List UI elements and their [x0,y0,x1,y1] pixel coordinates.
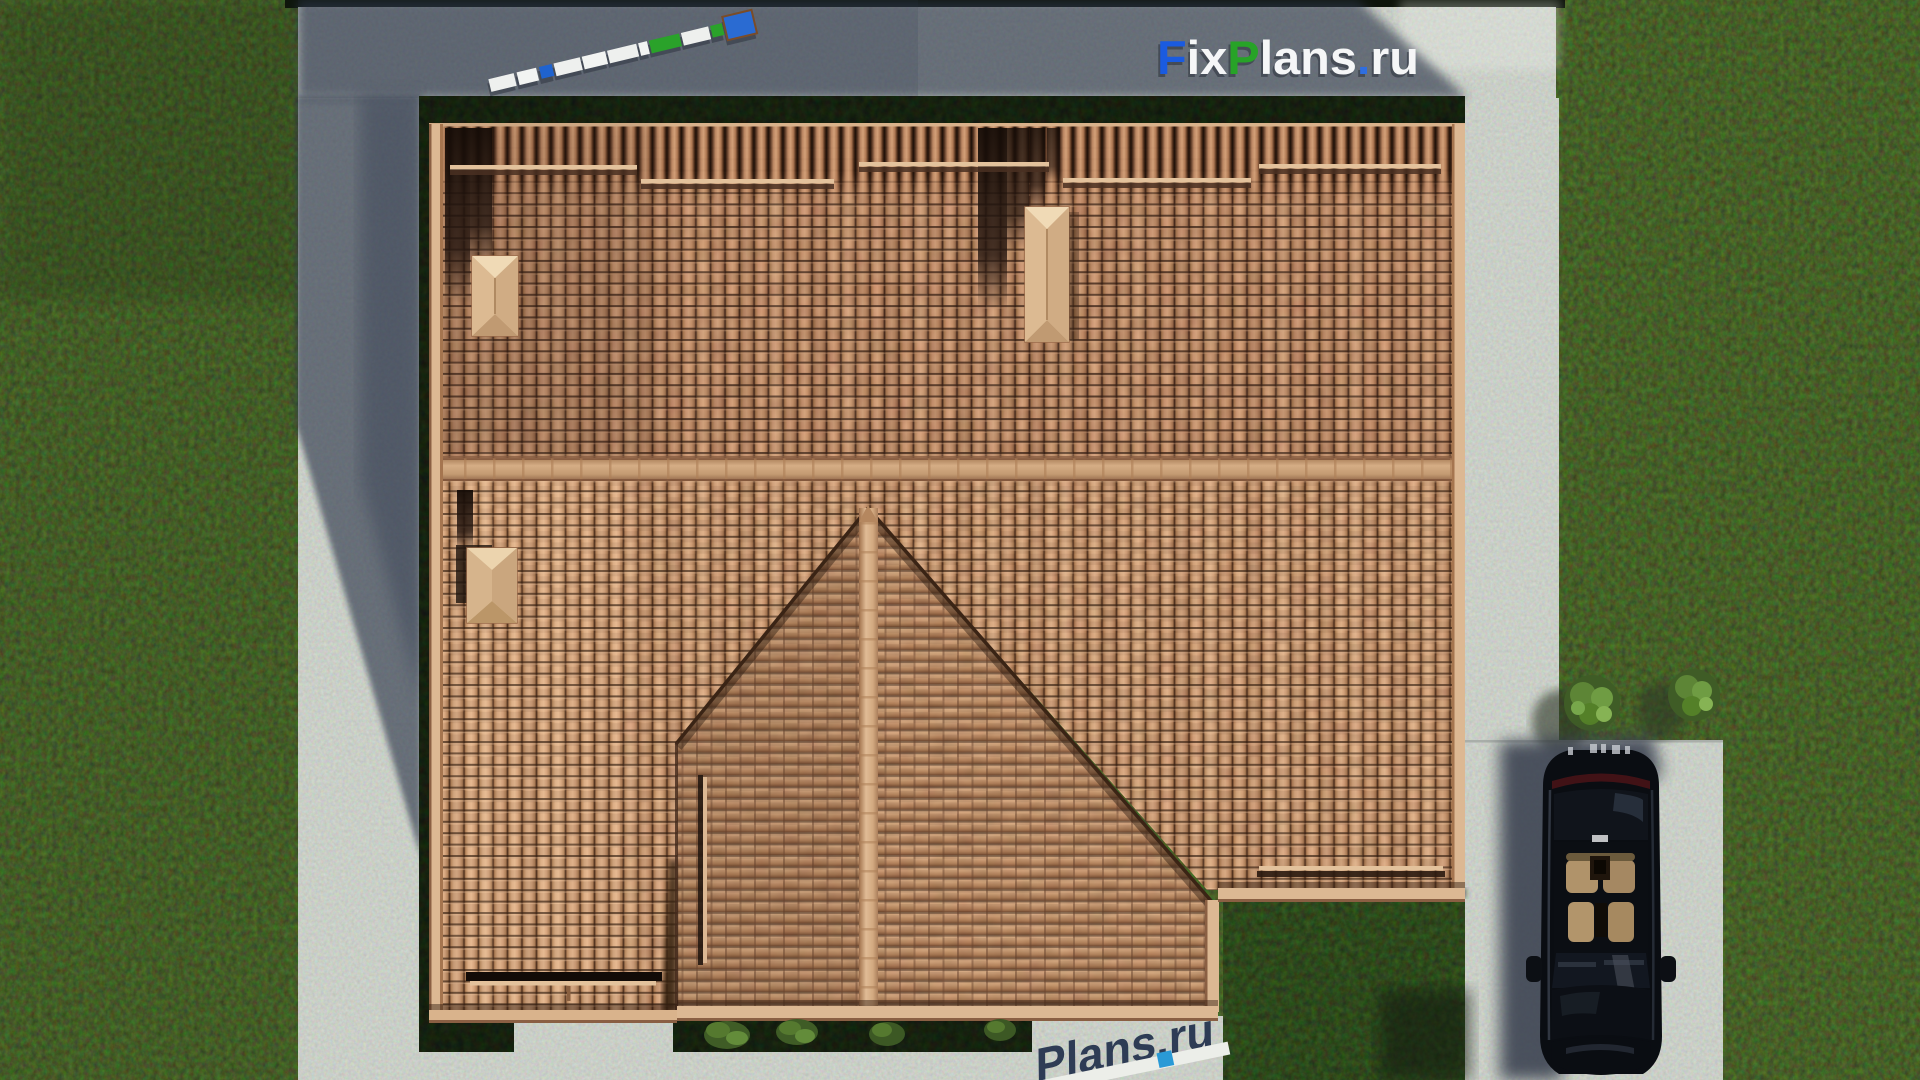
svg-text:FixPlans.ru: FixPlans.ru [1157,31,1419,84]
